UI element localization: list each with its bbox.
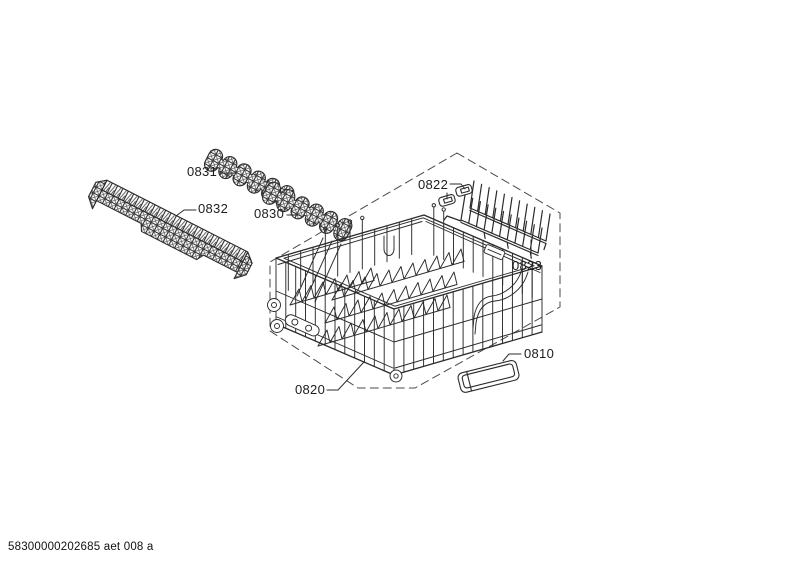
part-label-0830: 0830 — [254, 207, 284, 221]
part-label-0823: 0823 — [512, 259, 542, 273]
part-0822-clip-right — [455, 184, 473, 197]
part-label-0822: 0822 — [418, 178, 448, 192]
part-label-0831: 0831 — [187, 165, 217, 179]
part-0832-rack-shelf — [84, 176, 255, 284]
part-label-0820: 0820 — [295, 383, 325, 397]
exploded-parts-drawing — [0, 0, 800, 566]
part-0810-tray — [457, 359, 520, 393]
leader-0810 — [503, 354, 521, 361]
leader-0832 — [176, 210, 196, 216]
part-label-0810: 0810 — [524, 347, 554, 361]
diagram-page: 0831 0832 0830 0822 0823 0820 0810 58300… — [0, 0, 800, 566]
document-code: 58300000202685 aet 008 a — [8, 541, 154, 553]
part-label-0832: 0832 — [198, 202, 228, 216]
leader-0820 — [327, 362, 364, 390]
